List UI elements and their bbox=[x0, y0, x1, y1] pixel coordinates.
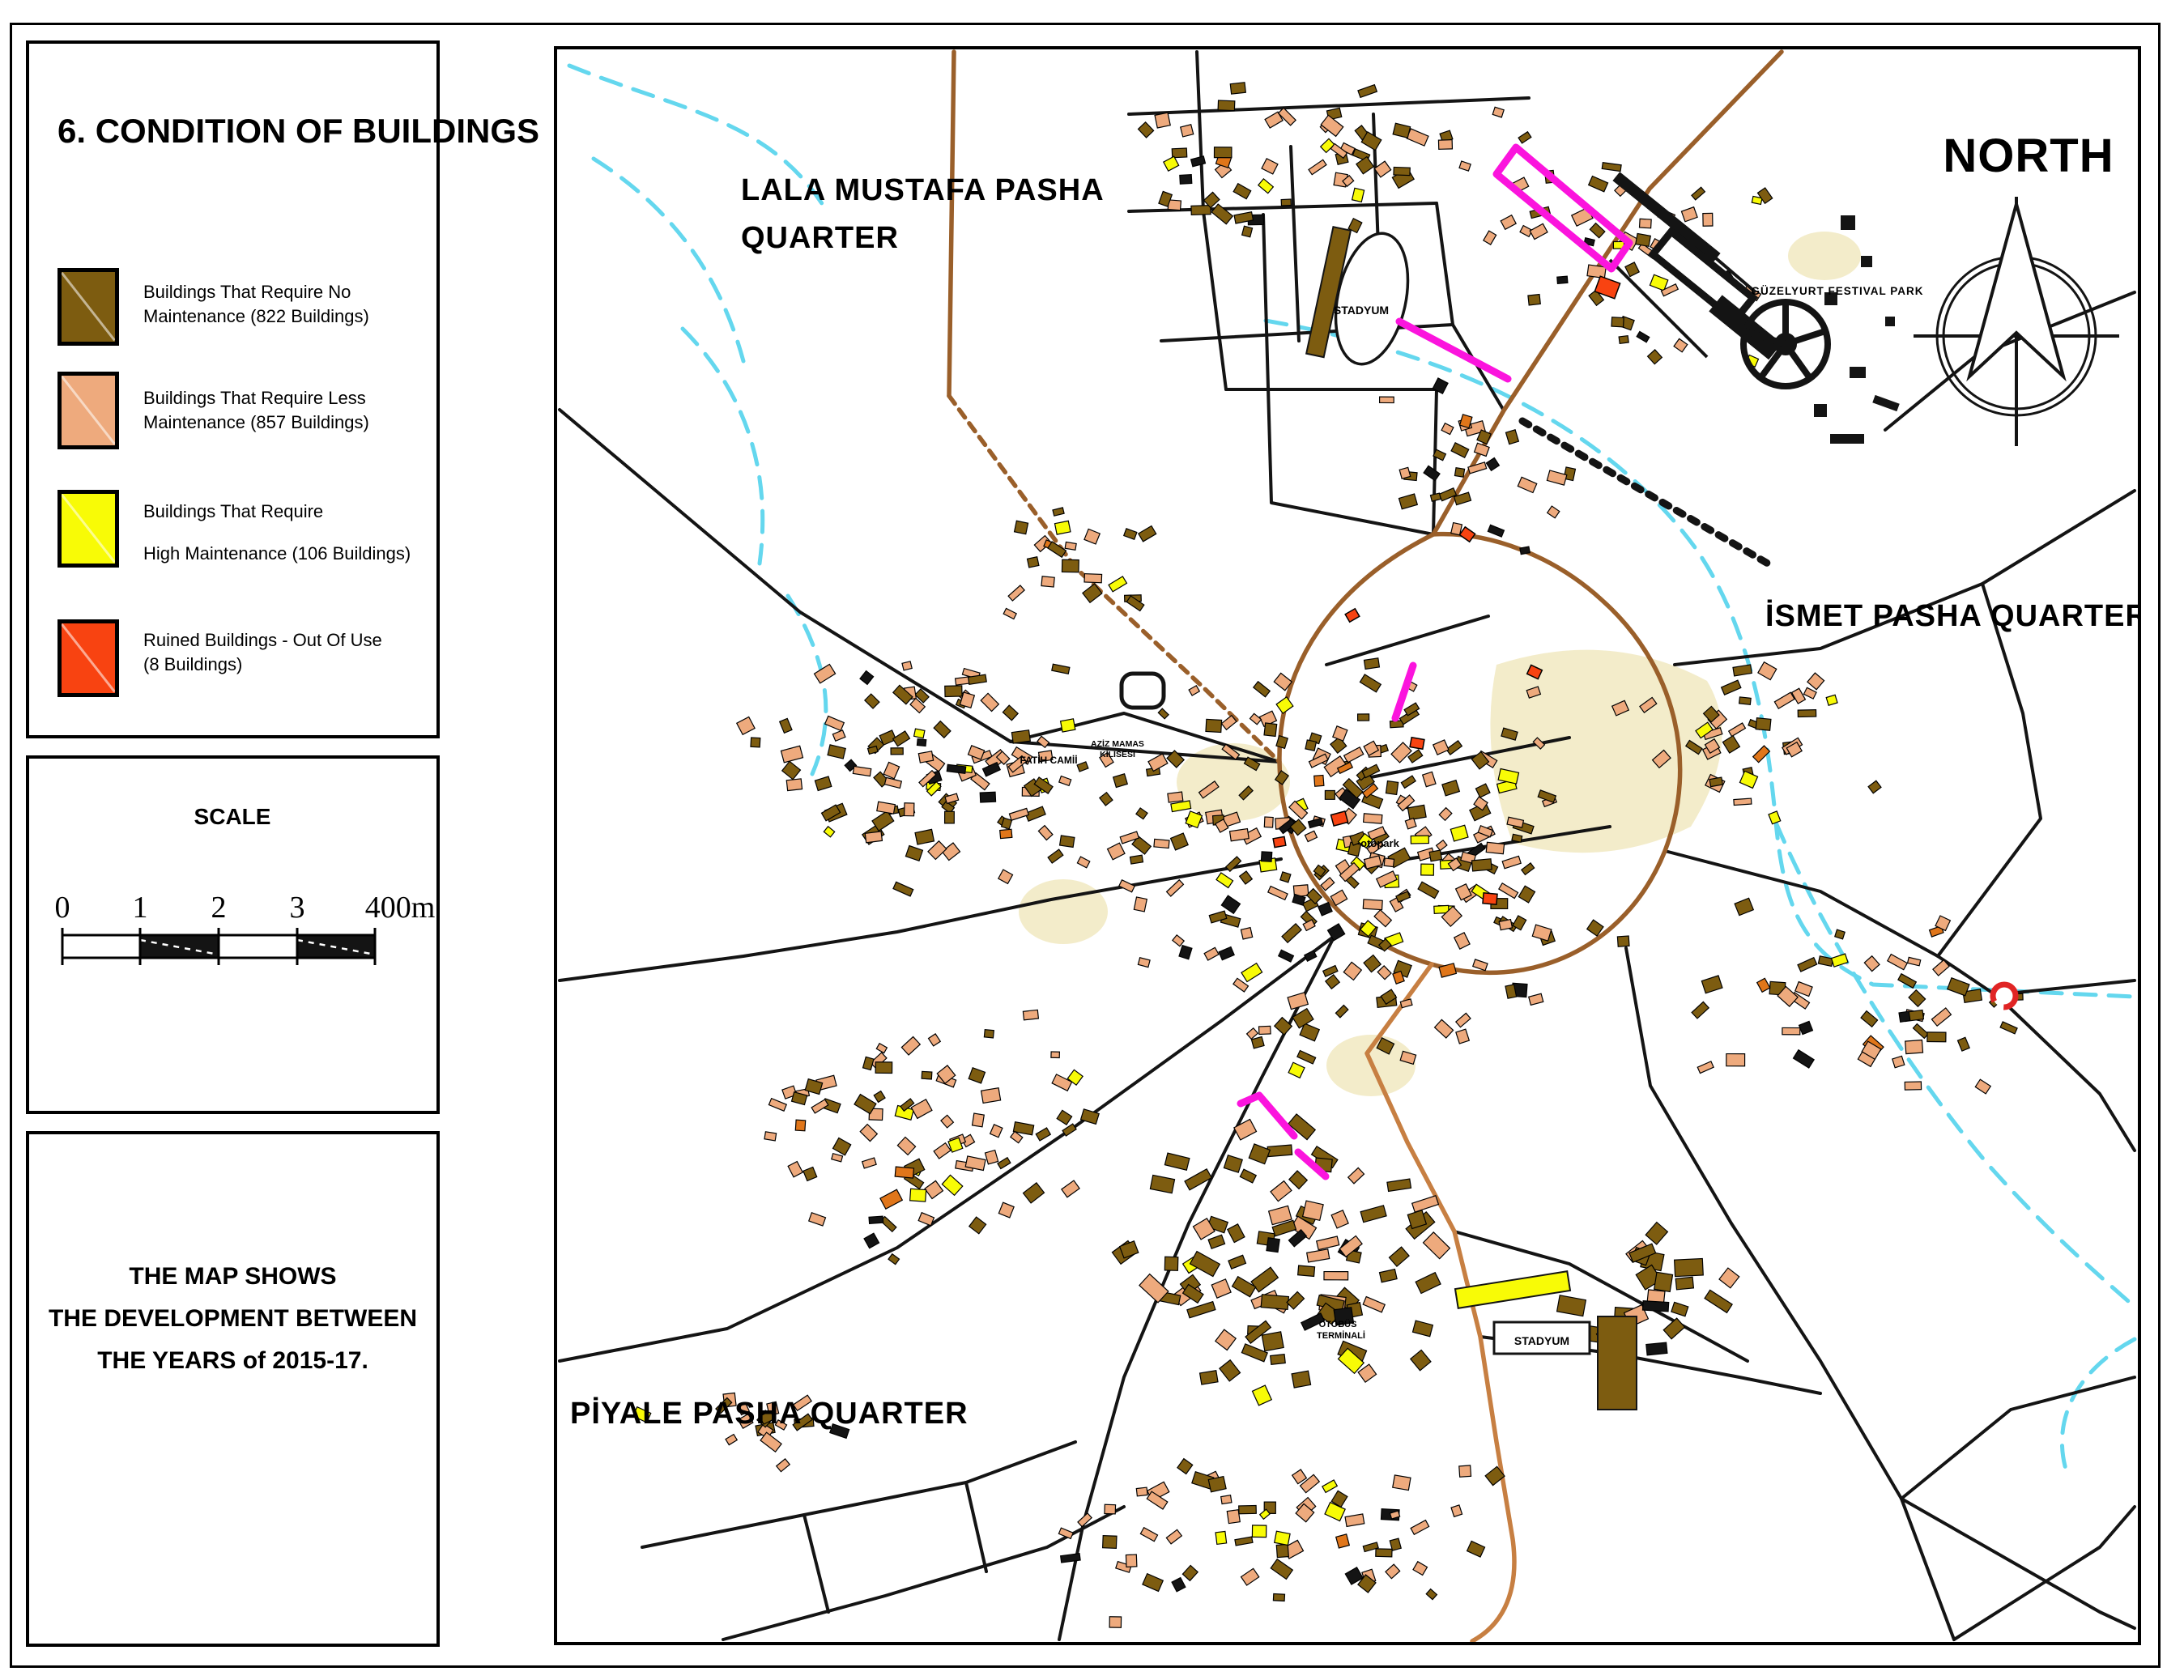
building bbox=[832, 1154, 843, 1162]
building bbox=[1735, 898, 1753, 915]
building bbox=[1062, 1180, 1079, 1197]
building bbox=[1336, 1534, 1350, 1548]
building bbox=[825, 716, 845, 730]
building bbox=[1532, 925, 1552, 941]
building bbox=[1292, 1371, 1310, 1388]
building bbox=[1297, 1050, 1316, 1064]
building bbox=[1456, 1029, 1469, 1044]
building bbox=[1611, 317, 1624, 327]
building bbox=[1154, 839, 1169, 848]
building bbox=[1733, 665, 1752, 676]
building bbox=[777, 1459, 790, 1472]
legend-swatch-ruined bbox=[57, 619, 119, 697]
building bbox=[1358, 1364, 1376, 1382]
building bbox=[1400, 999, 1412, 1008]
swatch-diagonal bbox=[61, 494, 115, 563]
building bbox=[922, 1071, 932, 1079]
quarter-label-ismet: İSMET PASHA QUARTER bbox=[1765, 599, 2138, 633]
building bbox=[1364, 658, 1379, 670]
building bbox=[1719, 1268, 1739, 1288]
building bbox=[880, 1189, 902, 1209]
building bbox=[1451, 1505, 1462, 1516]
building bbox=[905, 846, 922, 861]
building bbox=[1530, 223, 1548, 239]
building bbox=[782, 761, 801, 779]
building bbox=[1271, 1355, 1286, 1365]
building bbox=[1674, 338, 1688, 351]
building bbox=[1140, 1528, 1157, 1542]
building bbox=[1529, 993, 1543, 1005]
building bbox=[1518, 132, 1531, 143]
building bbox=[1167, 880, 1184, 896]
building bbox=[1348, 1167, 1364, 1184]
building bbox=[1208, 1235, 1224, 1248]
building bbox=[1352, 188, 1364, 202]
building bbox=[1051, 1052, 1059, 1058]
poi-label-church-line1: AZİZ MAMAS bbox=[1091, 738, 1144, 749]
building bbox=[1360, 674, 1381, 692]
building bbox=[1164, 156, 1179, 171]
building bbox=[1226, 857, 1241, 871]
building bbox=[1803, 687, 1816, 699]
poi-label-stadium-south: STADYUM bbox=[1514, 1334, 1569, 1347]
building bbox=[1331, 1210, 1348, 1228]
building bbox=[1799, 1021, 1813, 1034]
building bbox=[981, 1088, 1001, 1104]
building bbox=[934, 1143, 951, 1159]
building bbox=[1309, 819, 1323, 828]
building bbox=[1864, 956, 1880, 972]
building bbox=[1172, 1578, 1186, 1592]
building bbox=[1084, 574, 1102, 583]
building bbox=[1119, 880, 1135, 892]
building bbox=[1230, 83, 1245, 94]
building bbox=[1322, 1480, 1337, 1492]
stadium-south-building bbox=[1598, 1316, 1637, 1410]
building bbox=[1314, 775, 1324, 786]
quarter-label-lala-mustafa-line2: QUARTER bbox=[741, 221, 899, 255]
building bbox=[1396, 891, 1410, 902]
legend-label-line: Ruined Buildings - Out Of Use bbox=[143, 628, 382, 653]
building bbox=[1041, 576, 1054, 587]
building bbox=[865, 831, 882, 843]
building bbox=[1343, 962, 1361, 980]
poi-label-mosque: FATİH CAMİİ bbox=[1020, 754, 1077, 766]
building bbox=[1187, 1302, 1215, 1318]
swatch-diagonal bbox=[61, 376, 115, 444]
building bbox=[910, 1189, 926, 1202]
building bbox=[1454, 468, 1464, 477]
ruined-building bbox=[1483, 893, 1497, 904]
building bbox=[1439, 808, 1452, 821]
building bbox=[1333, 726, 1347, 741]
building bbox=[1548, 506, 1560, 518]
building bbox=[1832, 954, 1848, 967]
building bbox=[1393, 1475, 1411, 1491]
building bbox=[1023, 1010, 1038, 1019]
swatch-diagonal bbox=[61, 272, 115, 341]
building bbox=[1488, 525, 1504, 537]
building bbox=[862, 1158, 876, 1168]
building bbox=[1171, 833, 1189, 850]
building bbox=[1261, 1295, 1288, 1310]
legend-swatch-no-maintenance bbox=[57, 268, 119, 346]
building bbox=[884, 777, 901, 788]
building bbox=[1275, 1531, 1290, 1545]
building bbox=[1692, 187, 1705, 200]
building bbox=[1345, 1514, 1364, 1527]
building bbox=[891, 748, 903, 755]
building bbox=[1230, 829, 1250, 841]
building bbox=[869, 1216, 883, 1223]
building bbox=[942, 843, 960, 861]
building bbox=[1590, 223, 1605, 238]
building bbox=[1100, 793, 1113, 806]
building bbox=[1729, 723, 1746, 737]
building bbox=[1459, 1465, 1471, 1477]
building bbox=[1356, 157, 1374, 174]
building bbox=[1441, 423, 1454, 435]
building bbox=[925, 1180, 943, 1198]
building bbox=[1756, 718, 1771, 731]
building bbox=[1471, 859, 1492, 871]
building bbox=[1697, 1061, 1714, 1074]
building bbox=[1363, 900, 1382, 910]
building bbox=[1258, 179, 1274, 194]
building bbox=[914, 729, 925, 738]
building bbox=[875, 1062, 892, 1074]
building bbox=[1232, 1277, 1256, 1297]
building bbox=[1249, 1144, 1270, 1164]
building bbox=[918, 751, 933, 763]
building bbox=[1426, 1589, 1437, 1600]
north-road bbox=[949, 52, 954, 396]
building bbox=[888, 1254, 899, 1265]
building bbox=[1052, 664, 1070, 674]
building bbox=[1617, 936, 1629, 946]
building bbox=[1124, 529, 1137, 539]
building bbox=[1905, 1082, 1921, 1090]
building bbox=[902, 661, 912, 670]
building bbox=[1179, 946, 1192, 959]
building bbox=[1303, 1201, 1323, 1220]
building bbox=[1344, 747, 1364, 763]
building bbox=[865, 694, 879, 708]
poi-label-bus-terminal-line2: TERMİNALİ bbox=[1317, 1330, 1365, 1341]
building bbox=[973, 1113, 985, 1127]
building bbox=[1048, 542, 1066, 557]
building bbox=[1502, 856, 1521, 868]
building bbox=[1215, 1329, 1236, 1350]
building bbox=[1473, 959, 1488, 971]
building bbox=[726, 1435, 737, 1445]
legend-label-line: High Maintenance (106 Buildings) bbox=[143, 533, 411, 575]
poi-label-church-line2: KİLİSESİ bbox=[1100, 749, 1135, 759]
building bbox=[1794, 1050, 1815, 1068]
note-line: THE MAP SHOWS bbox=[29, 1256, 436, 1298]
building bbox=[1528, 295, 1540, 305]
building bbox=[1501, 215, 1516, 230]
building bbox=[1139, 122, 1154, 138]
poi-label-car-park: otopark bbox=[1360, 837, 1399, 849]
building bbox=[1413, 1321, 1433, 1337]
building bbox=[1589, 177, 1608, 192]
scale-tick-2: 2 bbox=[211, 891, 227, 925]
building bbox=[1267, 1145, 1292, 1156]
building bbox=[1036, 1128, 1050, 1141]
building bbox=[1211, 1279, 1231, 1298]
building bbox=[1200, 1371, 1218, 1384]
scale-tick-1: 1 bbox=[133, 891, 148, 925]
building bbox=[1242, 226, 1253, 237]
building bbox=[1305, 831, 1317, 841]
building bbox=[811, 1099, 828, 1113]
building bbox=[1387, 1179, 1411, 1191]
building bbox=[1451, 443, 1469, 457]
scale-bar bbox=[62, 928, 375, 965]
quarter-label-piyale: PİYALE PASHA QUARTER bbox=[570, 1397, 969, 1431]
building bbox=[981, 693, 998, 711]
legend-title: 6. CONDITION OF BUILDINGS bbox=[57, 112, 539, 151]
building bbox=[1520, 547, 1530, 555]
building bbox=[1681, 207, 1697, 222]
building bbox=[985, 1150, 998, 1164]
building bbox=[1309, 159, 1326, 174]
building bbox=[860, 1125, 877, 1142]
building bbox=[1191, 206, 1211, 215]
building bbox=[1181, 125, 1194, 137]
building bbox=[1190, 1252, 1220, 1277]
building bbox=[990, 1125, 1003, 1138]
building bbox=[1505, 985, 1517, 998]
quarter-label-lala-mustafa-line1: LALA MUSTAFA PASHA bbox=[741, 173, 1105, 207]
building bbox=[1305, 740, 1316, 751]
building bbox=[1262, 1332, 1284, 1351]
building bbox=[1058, 1528, 1073, 1538]
building bbox=[945, 811, 955, 823]
building bbox=[1003, 705, 1018, 721]
building bbox=[1433, 740, 1449, 755]
building bbox=[1769, 811, 1781, 824]
building bbox=[1289, 1171, 1307, 1189]
building bbox=[1861, 1011, 1878, 1027]
building bbox=[1722, 736, 1739, 753]
building bbox=[1401, 776, 1416, 788]
building bbox=[1424, 466, 1440, 480]
building bbox=[780, 718, 792, 733]
building bbox=[1305, 951, 1317, 961]
building bbox=[1389, 1247, 1409, 1266]
scale-tick-0: 0 bbox=[55, 891, 70, 925]
building bbox=[1394, 167, 1410, 175]
building bbox=[1239, 1505, 1257, 1513]
building bbox=[1335, 1005, 1347, 1017]
building bbox=[1276, 736, 1288, 749]
building bbox=[1288, 993, 1308, 1010]
building bbox=[905, 803, 914, 816]
building bbox=[1386, 1564, 1400, 1579]
building bbox=[1252, 1525, 1266, 1538]
building bbox=[1663, 1318, 1684, 1339]
building bbox=[1888, 955, 1907, 970]
building bbox=[1108, 843, 1125, 860]
building bbox=[1423, 1232, 1450, 1259]
building bbox=[1109, 576, 1126, 592]
building bbox=[1377, 966, 1391, 980]
building bbox=[1380, 1270, 1398, 1282]
legend-label-line: (8 Buildings) bbox=[143, 653, 382, 677]
building bbox=[1060, 836, 1075, 848]
map-note: THE MAP SHOWS THE DEVELOPMENT BETWEEN TH… bbox=[29, 1256, 436, 1382]
building bbox=[1083, 584, 1102, 602]
scale-panel: SCALE 0 1 2 3 400m bbox=[26, 755, 440, 1114]
legend-label-line: Maintenance (857 Buildings) bbox=[143, 410, 369, 435]
building bbox=[1218, 100, 1235, 111]
building bbox=[876, 1044, 887, 1053]
building bbox=[1235, 1537, 1253, 1546]
building bbox=[883, 762, 899, 778]
building bbox=[1216, 873, 1233, 888]
building bbox=[1739, 697, 1752, 704]
building bbox=[1807, 673, 1824, 690]
building bbox=[809, 1213, 826, 1226]
city-map: NORTH LALA MUSTAFA PASHA QUARTER İSMET P… bbox=[557, 49, 2138, 1642]
roundabout-marker bbox=[1993, 985, 2016, 1007]
building bbox=[998, 1202, 1014, 1218]
building bbox=[768, 1099, 786, 1112]
building bbox=[1868, 780, 1881, 793]
building bbox=[942, 1175, 962, 1195]
building bbox=[897, 1137, 915, 1155]
building bbox=[1557, 1295, 1586, 1316]
map-sheet: 6. CONDITION OF BUILDINGS Buildings That… bbox=[0, 0, 2184, 1680]
building bbox=[1692, 1002, 1709, 1019]
building bbox=[1321, 878, 1335, 891]
building bbox=[1024, 1183, 1045, 1203]
building bbox=[1739, 771, 1757, 788]
ruined-building bbox=[1273, 836, 1286, 847]
building bbox=[803, 1167, 817, 1180]
building bbox=[1261, 852, 1271, 861]
building bbox=[864, 1233, 879, 1248]
building bbox=[1136, 1487, 1147, 1496]
building bbox=[1412, 1196, 1439, 1212]
building bbox=[1214, 147, 1231, 158]
building bbox=[737, 717, 755, 734]
building bbox=[877, 802, 896, 814]
building bbox=[895, 1167, 913, 1178]
building bbox=[860, 671, 874, 685]
building bbox=[1282, 924, 1301, 942]
legend-label-ruined: Ruined Buildings - Out Of Use (8 Buildin… bbox=[143, 628, 382, 677]
ruined-building bbox=[1330, 811, 1347, 826]
building bbox=[1399, 494, 1417, 509]
building bbox=[1701, 976, 1722, 993]
building bbox=[1077, 762, 1088, 772]
building bbox=[998, 870, 1013, 883]
building bbox=[998, 1158, 1011, 1169]
building bbox=[1648, 350, 1662, 364]
building bbox=[1958, 1037, 1970, 1051]
building bbox=[1429, 850, 1441, 861]
building bbox=[1798, 958, 1817, 972]
building bbox=[1130, 855, 1143, 864]
building bbox=[1240, 871, 1253, 884]
scale-bar-graphic: SCALE 0 1 2 3 400m bbox=[29, 759, 436, 1111]
building bbox=[1062, 559, 1079, 572]
building bbox=[1380, 397, 1394, 402]
building bbox=[1103, 1536, 1117, 1549]
building bbox=[1168, 792, 1183, 802]
building bbox=[1298, 1265, 1315, 1276]
building bbox=[1177, 1459, 1193, 1474]
building bbox=[1435, 1019, 1454, 1038]
building bbox=[1637, 331, 1650, 342]
poi-label-festival-park: GÜZELYURT FESTIVAL PARK bbox=[1751, 285, 1923, 297]
building bbox=[1287, 1291, 1305, 1308]
building bbox=[1206, 719, 1222, 732]
building bbox=[1227, 1510, 1240, 1524]
building bbox=[893, 731, 910, 746]
building bbox=[1602, 163, 1621, 172]
building bbox=[1000, 829, 1012, 838]
building bbox=[815, 776, 831, 790]
building bbox=[934, 721, 951, 738]
building bbox=[1557, 276, 1568, 283]
building bbox=[1143, 1574, 1163, 1592]
building bbox=[928, 841, 947, 860]
legend-swatch-high-maintenance bbox=[57, 490, 119, 568]
building bbox=[1139, 526, 1156, 542]
building bbox=[1275, 1018, 1292, 1035]
scale-tick-3: 3 bbox=[290, 891, 305, 925]
building bbox=[1264, 817, 1273, 827]
building bbox=[1492, 107, 1504, 117]
building bbox=[1899, 1011, 1910, 1022]
building bbox=[1134, 897, 1147, 912]
building bbox=[1364, 814, 1382, 823]
building bbox=[1173, 935, 1184, 946]
building bbox=[863, 1057, 874, 1070]
building bbox=[1204, 947, 1219, 960]
legend-label-less-maintenance: Buildings That Require Less Maintenance … bbox=[143, 386, 369, 435]
building bbox=[1518, 477, 1536, 492]
building bbox=[1191, 156, 1206, 167]
north-road-dashed bbox=[949, 396, 1279, 762]
building bbox=[1138, 958, 1150, 968]
building bbox=[1276, 1544, 1288, 1557]
poi-label-bus-terminal-line1: OTOBÜS bbox=[1319, 1319, 1357, 1329]
building bbox=[1518, 886, 1535, 903]
building bbox=[1499, 920, 1512, 930]
building bbox=[1224, 1155, 1242, 1172]
building bbox=[1547, 470, 1566, 485]
building bbox=[1358, 85, 1377, 98]
building bbox=[1028, 557, 1039, 568]
building bbox=[1363, 1297, 1385, 1312]
building bbox=[1726, 1054, 1745, 1066]
building bbox=[1421, 864, 1434, 875]
building bbox=[1062, 1124, 1076, 1136]
building bbox=[1758, 662, 1777, 680]
building bbox=[1792, 688, 1806, 704]
building bbox=[1158, 708, 1169, 719]
building bbox=[1109, 1617, 1122, 1627]
scale-title: SCALE bbox=[194, 804, 271, 829]
building bbox=[1126, 1555, 1136, 1567]
building bbox=[874, 1091, 885, 1103]
building bbox=[781, 746, 803, 763]
